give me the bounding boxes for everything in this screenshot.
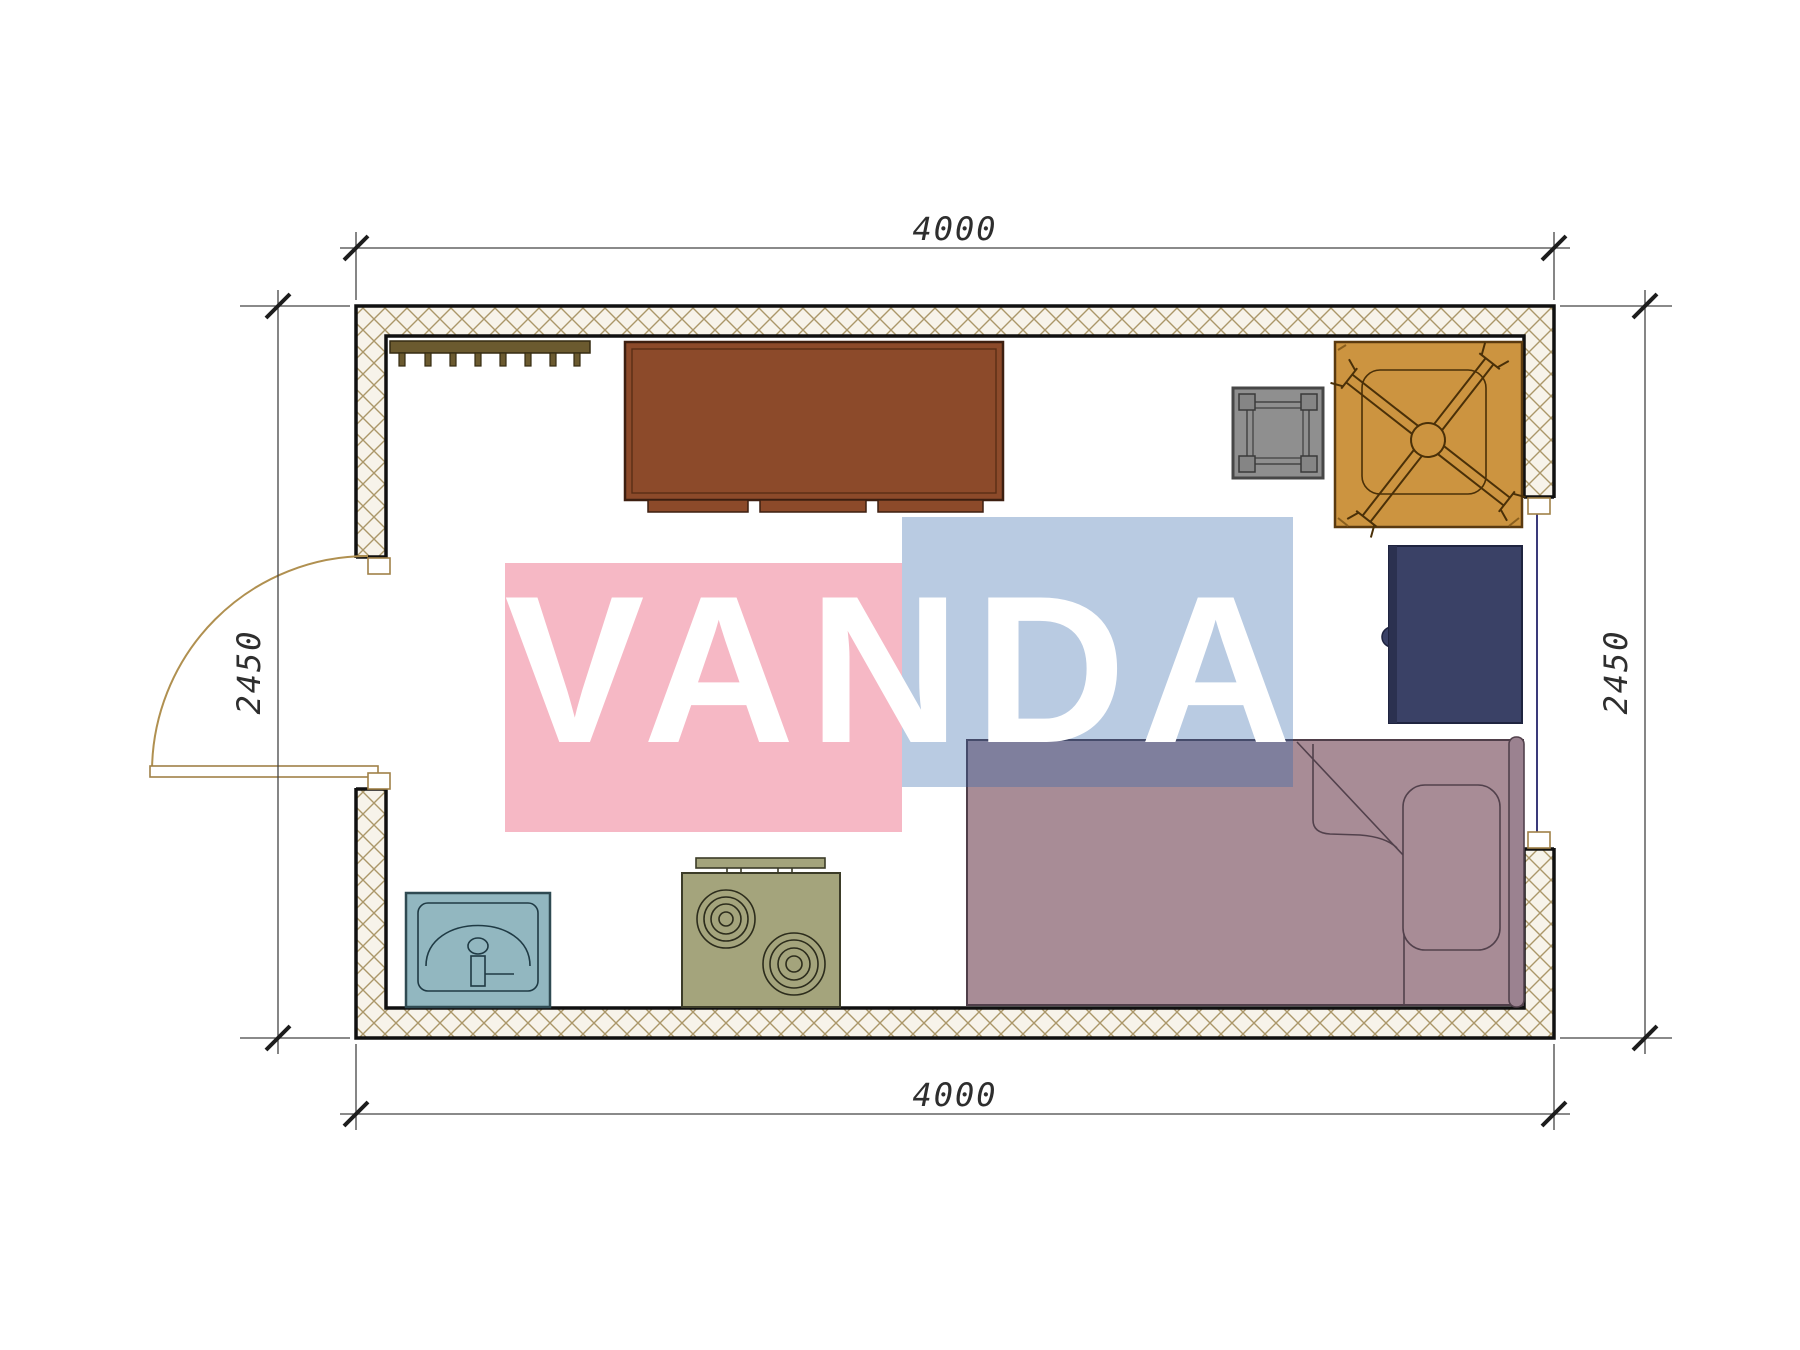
stove-panel	[696, 858, 825, 868]
dimension-bottom: 4000	[340, 1044, 1570, 1130]
door-jamb	[368, 773, 390, 789]
stove	[682, 858, 840, 1007]
coat-rack-hooks	[399, 353, 580, 366]
watermark: VANDA	[504, 517, 1305, 832]
window-sill	[1528, 498, 1550, 514]
dimension-top-label: 4000	[912, 210, 997, 248]
cabinet	[1382, 546, 1522, 723]
dimension-top: 4000	[340, 210, 1570, 300]
window-sill	[1528, 832, 1550, 848]
dimension-right: 2450	[1560, 290, 1672, 1054]
dimension-left: 2450	[230, 290, 350, 1054]
floor-plan-canvas: VANDA 4000 4000 2450 2450	[0, 0, 1800, 1350]
headboard	[1509, 737, 1524, 1007]
pillow	[1403, 785, 1500, 950]
door-opening	[350, 558, 392, 788]
stool	[1233, 388, 1323, 478]
dimension-bottom-label: 4000	[912, 1076, 997, 1114]
dimension-left-label: 2450	[230, 629, 268, 714]
sink	[406, 893, 550, 1007]
coat-rack	[390, 341, 590, 366]
wardrobe-doors	[648, 500, 983, 512]
watermark-text: VANDA	[504, 552, 1305, 787]
door-leaf	[150, 766, 378, 777]
door-jamb	[368, 558, 390, 574]
wardrobe	[625, 342, 1003, 512]
dimension-right-label: 2450	[1597, 629, 1635, 714]
floor-plan-drawing: VANDA 4000 4000 2450 2450	[0, 0, 1800, 1350]
